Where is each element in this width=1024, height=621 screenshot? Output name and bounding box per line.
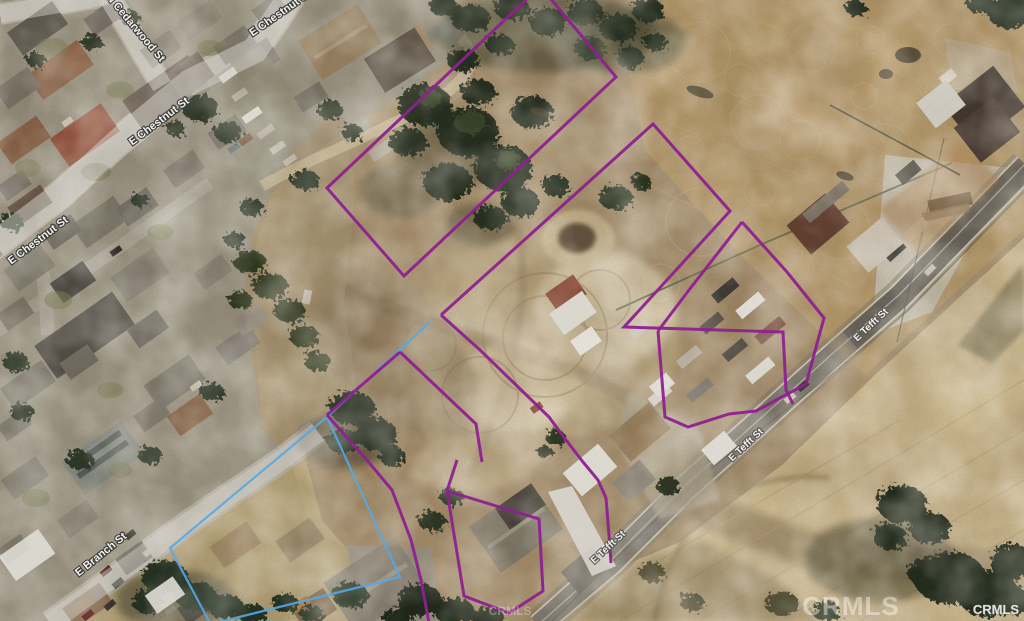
svg-text:CRMLS: CRMLS [802, 591, 899, 621]
svg-text:CRMLS: CRMLS [973, 602, 1020, 617]
svg-text:CRMLS: CRMLS [489, 604, 532, 618]
